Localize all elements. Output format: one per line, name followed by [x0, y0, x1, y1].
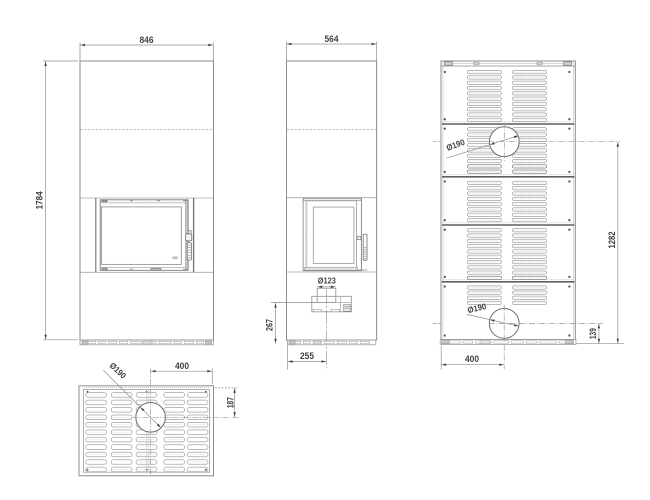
svg-text:267: 267	[264, 319, 274, 331]
svg-text:846: 846	[140, 35, 154, 45]
svg-text:187: 187	[225, 397, 235, 408]
svg-text:400: 400	[465, 354, 479, 364]
svg-text:1784: 1784	[35, 191, 45, 209]
svg-text:1282: 1282	[607, 232, 617, 249]
svg-text:564: 564	[325, 34, 339, 44]
svg-text:400: 400	[175, 361, 189, 371]
svg-text:Ø123: Ø123	[318, 276, 336, 286]
svg-text:139: 139	[588, 328, 598, 339]
svg-text:255: 255	[300, 351, 314, 361]
